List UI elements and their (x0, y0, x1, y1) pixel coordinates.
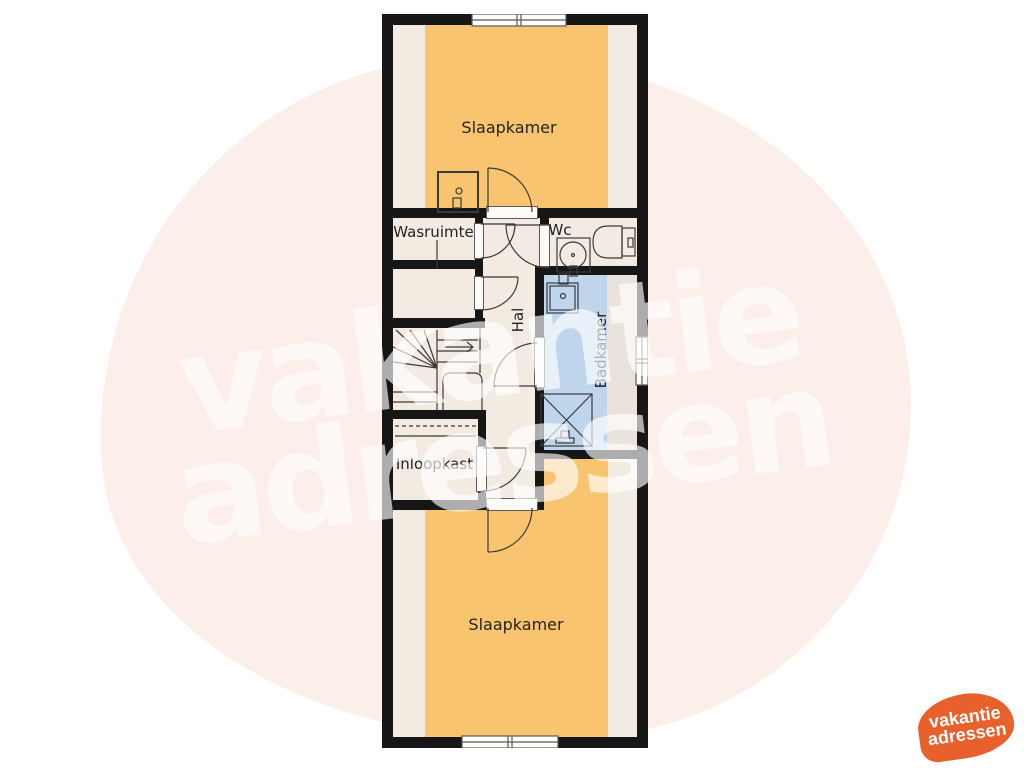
shower (541, 394, 592, 446)
label-bedroom-bottom: Slaapkamer (456, 615, 576, 634)
laundry-door (481, 224, 515, 258)
bedroom-bottom-door (488, 508, 532, 552)
window-top (472, 14, 566, 26)
label-closet: Inloopkast (383, 455, 486, 473)
floorplan: Slaapkamer Wasruimte Wc Hal Badkamer Inl… (382, 14, 648, 748)
label-hall: Hal (508, 300, 528, 340)
label-laundry: Wasruimte (384, 223, 483, 241)
label-bathroom: Badkamer (591, 305, 611, 395)
closet-door (483, 448, 526, 491)
window-bathroom (636, 337, 648, 385)
wc-sink (557, 238, 590, 276)
vakantieadressen-logo: vakantie adressen (914, 688, 1018, 765)
toilet (593, 226, 635, 258)
label-wc: Wc (535, 221, 585, 239)
window-bottom (462, 736, 558, 748)
bedroom-washbasin (438, 172, 478, 212)
staircase (393, 328, 482, 410)
logo-text: vakantie adressen (924, 704, 1007, 749)
bedroom-top-door (488, 168, 532, 212)
floorplan-canvas: Slaapkamer Wasruimte Wc Hal Badkamer Inl… (0, 0, 1024, 768)
bathroom-door (494, 343, 537, 386)
bathroom-sink (547, 274, 578, 313)
label-bedroom-top: Slaapkamer (449, 118, 569, 137)
